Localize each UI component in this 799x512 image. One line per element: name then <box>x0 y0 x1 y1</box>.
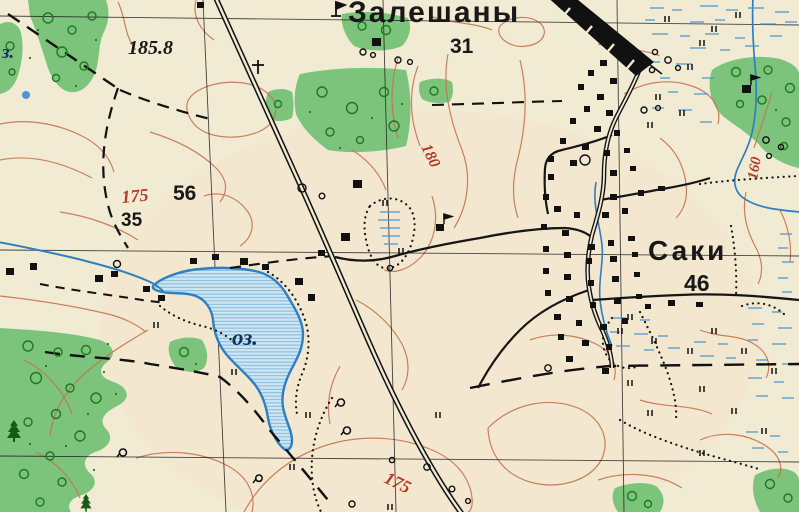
label-saki-households: 46 <box>684 270 710 296</box>
label-survey-35: 35 <box>121 210 143 231</box>
label-edge-abbreviation: з. <box>1 42 14 63</box>
label-survey-56: 56 <box>173 182 196 205</box>
label-contour-175-west: 175 <box>121 185 150 207</box>
label-zaleshany: Залешаны <box>348 0 520 29</box>
label-zaleshany-households: 31 <box>450 35 474 58</box>
map-canvas: Залешаны 31 Саки 46 185.8 175 56 35 180 … <box>0 0 799 512</box>
label-spot-height: 185.8 <box>128 37 173 59</box>
label-saki: Саки <box>648 235 727 266</box>
spring-symbol <box>22 91 30 99</box>
label-lake-abbreviation: оз. <box>232 325 258 350</box>
topographic-map: Залешаны 31 Саки 46 185.8 175 56 35 180 … <box>0 0 799 512</box>
